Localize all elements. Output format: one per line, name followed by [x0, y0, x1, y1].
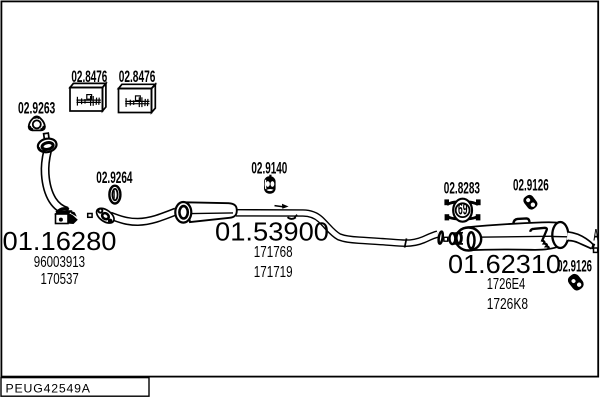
svg-text:02.9126: 02.9126 — [513, 176, 549, 195]
svg-text:1726E4: 1726E4 — [487, 276, 526, 293]
svg-text:02.9264: 02.9264 — [96, 168, 133, 187]
svg-text:96003913: 96003913 — [34, 254, 85, 271]
svg-text:1726K8: 1726K8 — [487, 296, 528, 313]
svg-text:02.9126: 02.9126 — [557, 257, 592, 276]
svg-text:A: A — [593, 225, 598, 244]
svg-text:02.8476: 02.8476 — [71, 67, 107, 86]
svg-text:170537: 170537 — [41, 271, 79, 288]
svg-text:01.62310: 01.62310 — [448, 249, 561, 279]
svg-text:PEUG42549A: PEUG42549A — [6, 382, 91, 396]
svg-text:02.8476: 02.8476 — [119, 67, 156, 86]
svg-text:02.9263: 02.9263 — [18, 99, 55, 118]
svg-text:171719: 171719 — [254, 264, 293, 281]
svg-text:69: 69 — [458, 199, 468, 218]
svg-text:01.53900: 01.53900 — [215, 217, 329, 247]
svg-text:02.9140: 02.9140 — [251, 159, 287, 178]
svg-text:02.8283: 02.8283 — [444, 179, 480, 198]
svg-text:171768: 171768 — [254, 244, 293, 261]
svg-text:01.16280: 01.16280 — [3, 226, 117, 256]
